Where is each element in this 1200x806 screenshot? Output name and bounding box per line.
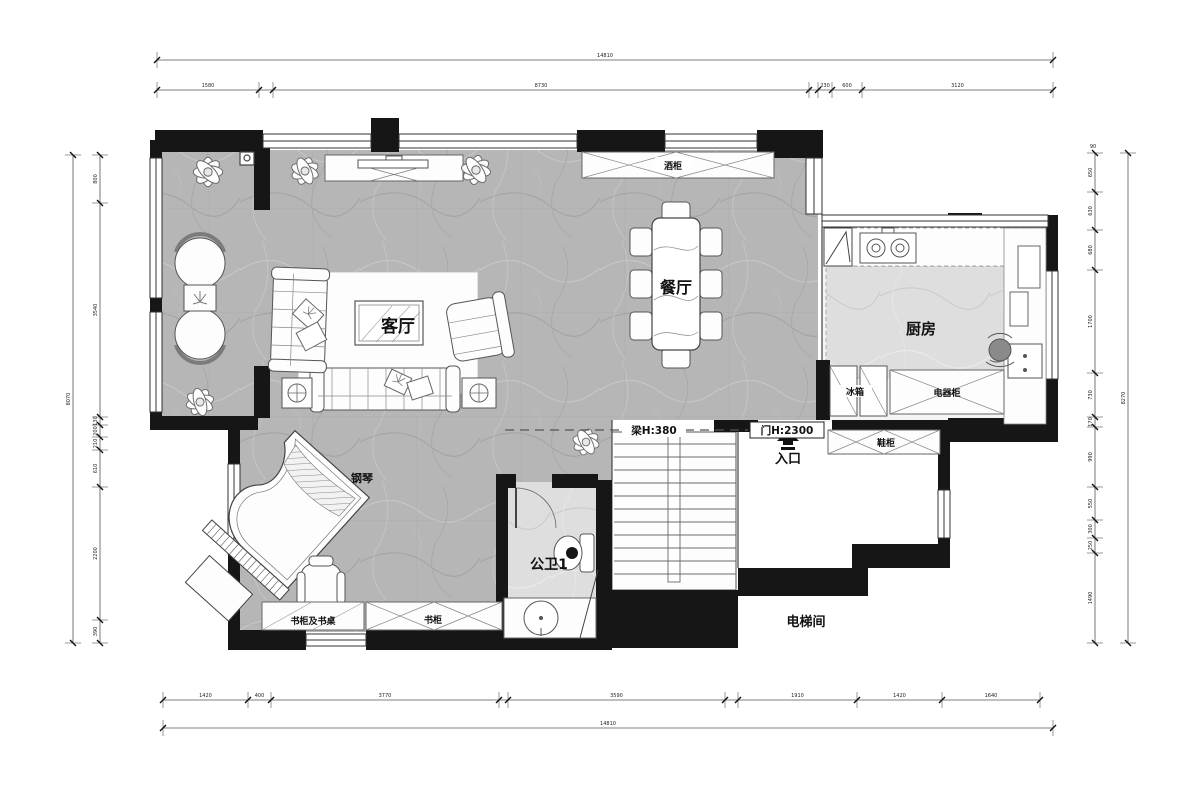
tv-wall	[325, 155, 463, 181]
svg-text:210: 210	[93, 439, 99, 449]
window-dining-right	[806, 158, 822, 214]
round-chair-2	[175, 309, 225, 363]
svg-text:门H:2300: 门H:2300	[761, 424, 814, 437]
plant-icon	[193, 157, 223, 187]
svg-text:300: 300	[1088, 524, 1094, 534]
window-bottom	[306, 634, 366, 646]
svg-text:1490: 1490	[1088, 592, 1094, 605]
svg-text:1640: 1640	[985, 693, 998, 699]
svg-text:8270: 8270	[1121, 392, 1127, 405]
svg-text:600: 600	[842, 83, 852, 89]
round-chair-1	[175, 234, 225, 288]
door-height-annotation: 门H:2300	[750, 422, 824, 438]
elevator-label: 电梯间	[786, 614, 825, 630]
svg-text:1910: 1910	[791, 693, 804, 699]
piano-label: 钢琴	[351, 471, 373, 485]
window-top-1	[263, 134, 371, 148]
kitchen-folding-door	[824, 228, 852, 266]
svg-text:630: 630	[1088, 206, 1094, 216]
svg-text:14810: 14810	[600, 721, 616, 727]
window-left-1	[150, 158, 162, 298]
side-table-lamp-right	[462, 378, 496, 408]
svg-text:130: 130	[93, 416, 99, 426]
svg-text:230: 230	[820, 83, 830, 89]
svg-text:梁H:380: 梁H:380	[630, 424, 676, 437]
svg-text:200: 200	[93, 426, 99, 436]
window-left-2	[150, 312, 162, 412]
staircase	[612, 432, 736, 590]
shoe-cabinet-label: 鞋柜	[877, 437, 895, 449]
svg-text:3540: 3540	[93, 304, 99, 317]
sofa-main	[310, 366, 460, 412]
window-top-3	[665, 134, 757, 148]
bath-label: 公卫1	[530, 557, 568, 573]
svg-text:250: 250	[1088, 541, 1094, 551]
svg-text:390: 390	[93, 627, 99, 637]
beam-annotation: 梁H:380	[622, 422, 686, 437]
svg-text:3120: 3120	[951, 83, 964, 89]
floor-plan-canvas: 客厅 餐厅 厨房 公卫1 入口 电梯间 钢琴 酒柜 冰箱 电器柜 鞋柜 书柜及书…	[0, 0, 1200, 806]
svg-text:800: 800	[93, 174, 99, 184]
sofa-loveseat	[268, 267, 330, 373]
appliance-cabinet-label: 电器柜	[933, 387, 960, 399]
svg-text:3590: 3590	[610, 693, 623, 699]
fridge-label: 冰箱	[846, 386, 864, 398]
svg-text:680: 680	[1088, 245, 1094, 255]
svg-text:610: 610	[93, 464, 99, 474]
kitchen-top-wall	[822, 215, 1048, 227]
svg-text:2200: 2200	[93, 547, 99, 560]
bookcase-label: 书柜	[424, 614, 442, 626]
floor-plan-drawing: 客厅 餐厅 厨房 公卫1 入口 电梯间 钢琴 酒柜 冰箱 电器柜 鞋柜 书柜及书…	[0, 0, 1200, 806]
bath-vanity	[504, 598, 596, 638]
dimension-extra: 90	[1090, 144, 1096, 150]
dining-room-label: 餐厅	[659, 278, 692, 297]
svg-text:1420: 1420	[893, 693, 906, 699]
svg-text:170: 170	[1088, 417, 1094, 427]
svg-text:990: 990	[1088, 452, 1094, 462]
kitchen-label: 厨房	[906, 320, 936, 338]
svg-text:1580: 1580	[202, 83, 215, 89]
wine-cabinet-label: 酒柜	[664, 160, 682, 172]
window-top-2	[399, 134, 577, 148]
window-kitchen-right	[1046, 271, 1058, 379]
svg-text:3770: 3770	[379, 693, 392, 699]
side-table-lamp-left	[282, 378, 312, 408]
svg-text:1420: 1420	[199, 693, 212, 699]
stove	[860, 228, 916, 263]
svg-text:8070: 8070	[66, 393, 72, 406]
svg-text:650: 650	[1088, 168, 1094, 178]
desk-bookcase-label: 书柜及书桌	[290, 615, 336, 627]
svg-text:400: 400	[255, 693, 265, 699]
svg-text:14810: 14810	[597, 53, 613, 59]
entry-label: 入口	[775, 452, 801, 467]
window-entry-right	[938, 490, 950, 538]
svg-text:1700: 1700	[1088, 315, 1094, 328]
living-room-label: 客厅	[380, 316, 415, 337]
svg-text:8730: 8730	[535, 83, 548, 89]
nook-table	[184, 285, 216, 311]
svg-text:730: 730	[1088, 390, 1094, 400]
svg-text:550: 550	[1088, 499, 1094, 509]
